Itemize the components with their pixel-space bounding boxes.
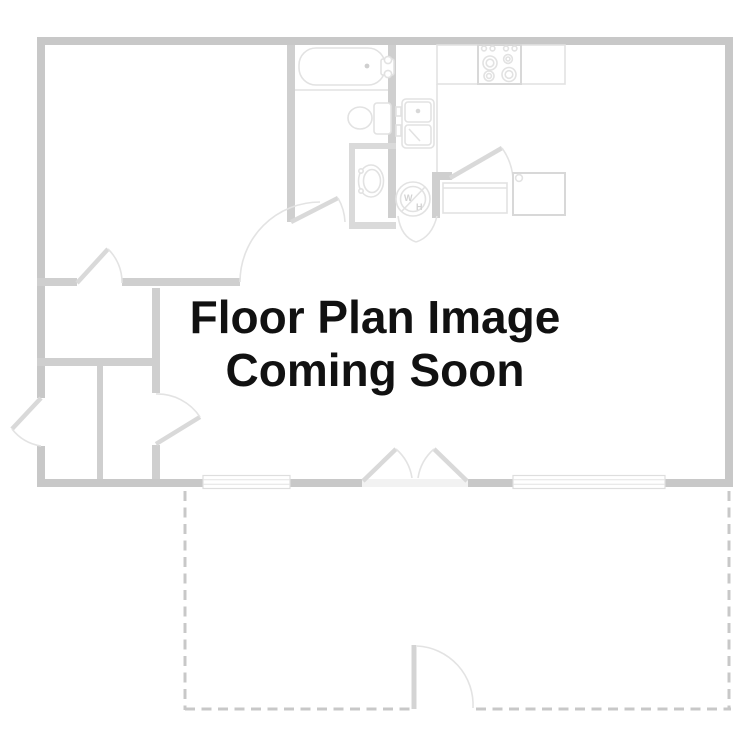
kitchen-door-leaf	[450, 148, 502, 178]
wall-closet-divider	[97, 366, 103, 479]
water-heater-label-h: H	[416, 202, 423, 212]
window-left	[203, 476, 290, 489]
closet-door-arc	[108, 249, 122, 283]
wall-closet-mid	[37, 358, 160, 366]
window-right	[513, 476, 665, 489]
wall-top	[37, 37, 733, 45]
refrigerator	[513, 173, 565, 215]
patio-outline	[185, 491, 731, 710]
bathtub-handle-cold	[384, 70, 391, 77]
wall-bedroom-south-seg1	[37, 278, 77, 286]
toilet-tank	[374, 103, 391, 134]
patio-door	[414, 645, 473, 709]
closet-door-leaf	[77, 249, 108, 283]
bathtub	[299, 48, 385, 85]
west-closet-door-arc	[12, 429, 41, 446]
sink-fixture	[396, 107, 401, 116]
sink-fixture	[396, 125, 401, 136]
sink-drain	[416, 109, 421, 114]
floor-plan-placeholder: W H Floor Plan Image C	[0, 0, 750, 750]
kitchen-sink	[396, 99, 434, 148]
wall-bottom-seg2	[290, 479, 362, 487]
bathroom-fixtures	[295, 48, 394, 197]
wall-closet-east-seg1	[152, 366, 160, 393]
wall-bathroom-west	[287, 45, 295, 222]
entry-door	[363, 449, 467, 481]
floor-plan-drawing: W H	[0, 0, 750, 750]
east-closet-door-arc	[156, 394, 200, 417]
kitchen-door-arc	[502, 148, 513, 178]
east-closet-door-leaf	[156, 417, 200, 444]
kitchen-fixtures: W H	[396, 45, 565, 216]
sink-basin-bottom	[405, 125, 431, 145]
wall-closet-east-seg2	[152, 445, 160, 479]
bathroom-door-arc	[338, 198, 345, 222]
vanity-sink	[359, 165, 384, 197]
base-cabinet	[443, 183, 507, 213]
bathtub-handle-hot	[384, 56, 391, 63]
water-heater-label-w: W	[404, 193, 413, 203]
wall-right	[725, 37, 733, 487]
wall-bedroom-south-seg2	[122, 278, 240, 286]
toilet-bowl	[348, 107, 372, 129]
vanity-handle	[359, 189, 363, 193]
water-heater: W H	[396, 182, 430, 216]
wall-left-upper	[37, 37, 45, 398]
stove	[478, 45, 521, 84]
wall-bottom-seg1	[37, 479, 203, 487]
west-closet-door-leaf	[12, 398, 41, 429]
wall-closet-east-upper	[152, 288, 160, 358]
wall-vanity-top	[349, 143, 396, 149]
patio-door-arc	[417, 646, 473, 708]
wall-bottom-seg3	[468, 479, 513, 487]
wall-vanity-bottom	[349, 222, 396, 229]
entry-threshold	[362, 479, 468, 487]
wh-door-right-arc	[416, 216, 437, 242]
wh-door-left-arc	[398, 216, 416, 242]
vanity-handle	[359, 169, 363, 173]
toilet	[348, 103, 391, 134]
wall-bottom-seg4	[665, 479, 733, 487]
bathtub-drain	[365, 64, 370, 69]
wall-vanity-west	[349, 143, 355, 229]
